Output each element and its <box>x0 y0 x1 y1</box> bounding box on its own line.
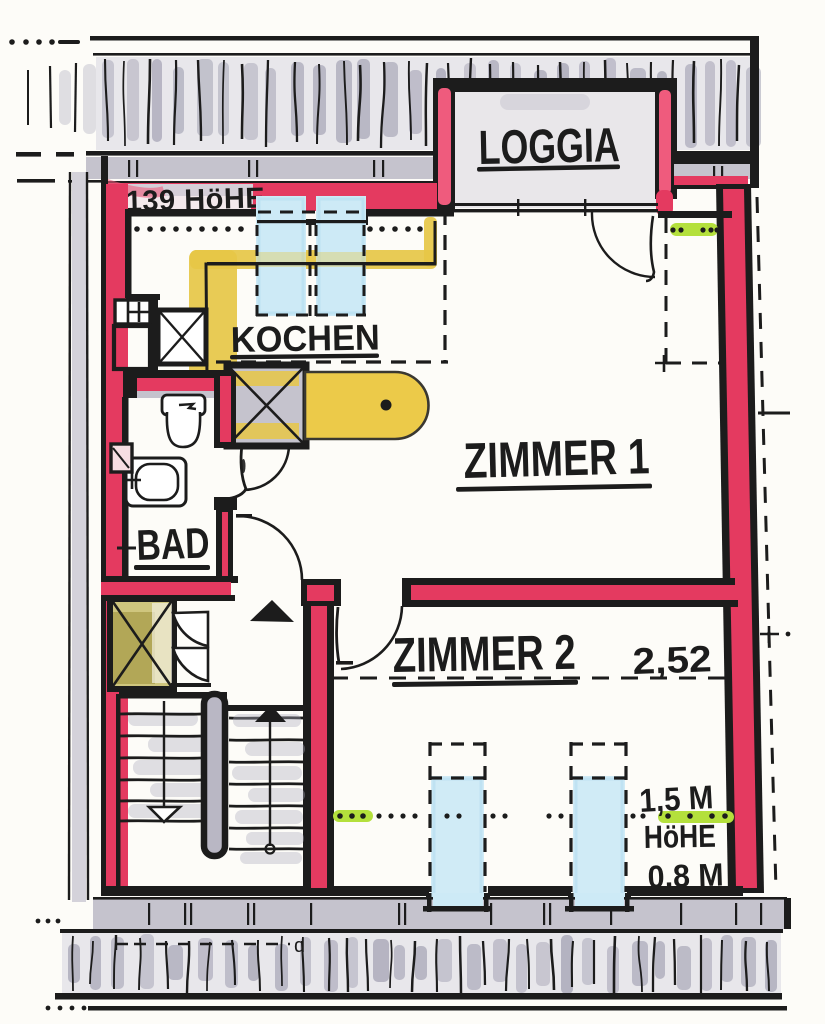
svg-text:ZIMMER 1: ZIMMER 1 <box>463 428 650 489</box>
svg-text:ZIMMER 2: ZIMMER 2 <box>392 626 576 683</box>
svg-text:HöHE: HöHE <box>643 818 716 855</box>
svg-text:139 HöHE: 139 HöHE <box>125 182 265 218</box>
svg-text:0,8 M: 0,8 M <box>647 856 724 895</box>
svg-text:d: d <box>294 935 305 957</box>
svg-text:KOCHEN: KOCHEN <box>230 316 380 360</box>
svg-text:2,52: 2,52 <box>632 638 712 682</box>
svg-text:1,5 M: 1,5 M <box>638 778 714 819</box>
svg-text:BAD: BAD <box>136 519 211 570</box>
